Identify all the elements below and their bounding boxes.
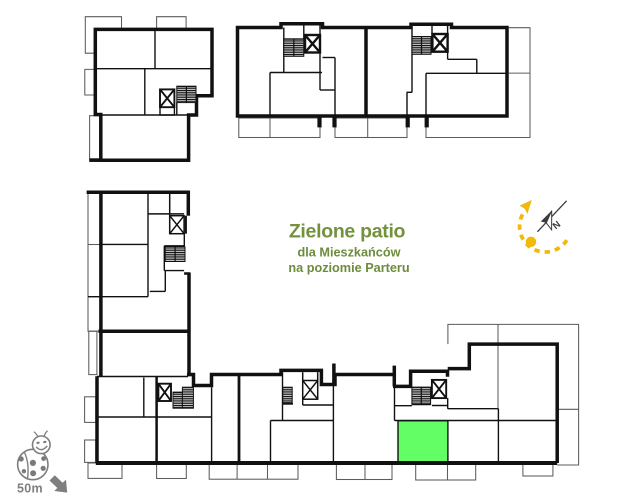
svg-text:N: N (551, 219, 563, 232)
svg-text:Zielone patio: Zielone patio (289, 221, 406, 243)
svg-text:na poziomie Parteru: na poziomie Parteru (288, 261, 409, 275)
svg-text:50m: 50m (17, 482, 43, 496)
svg-text:dla Mieszkańców: dla Mieszkańców (298, 246, 401, 260)
